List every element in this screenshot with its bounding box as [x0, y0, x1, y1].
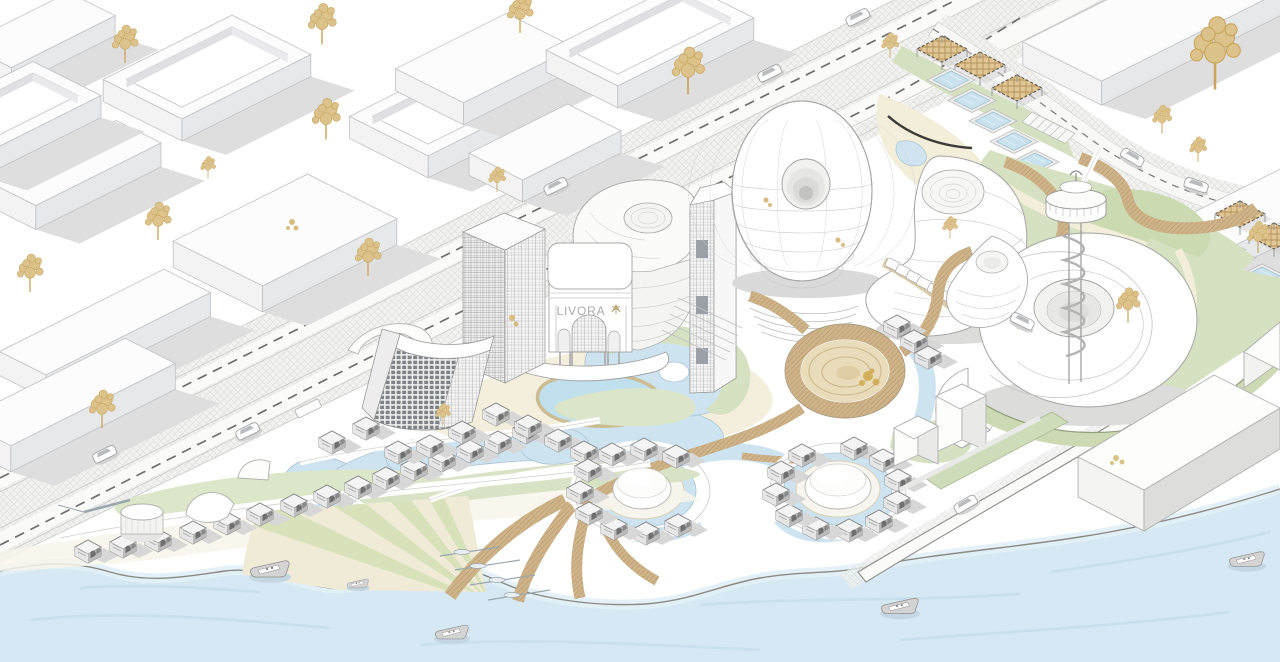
svg-text:LIVORA: LIVORA — [557, 304, 606, 318]
